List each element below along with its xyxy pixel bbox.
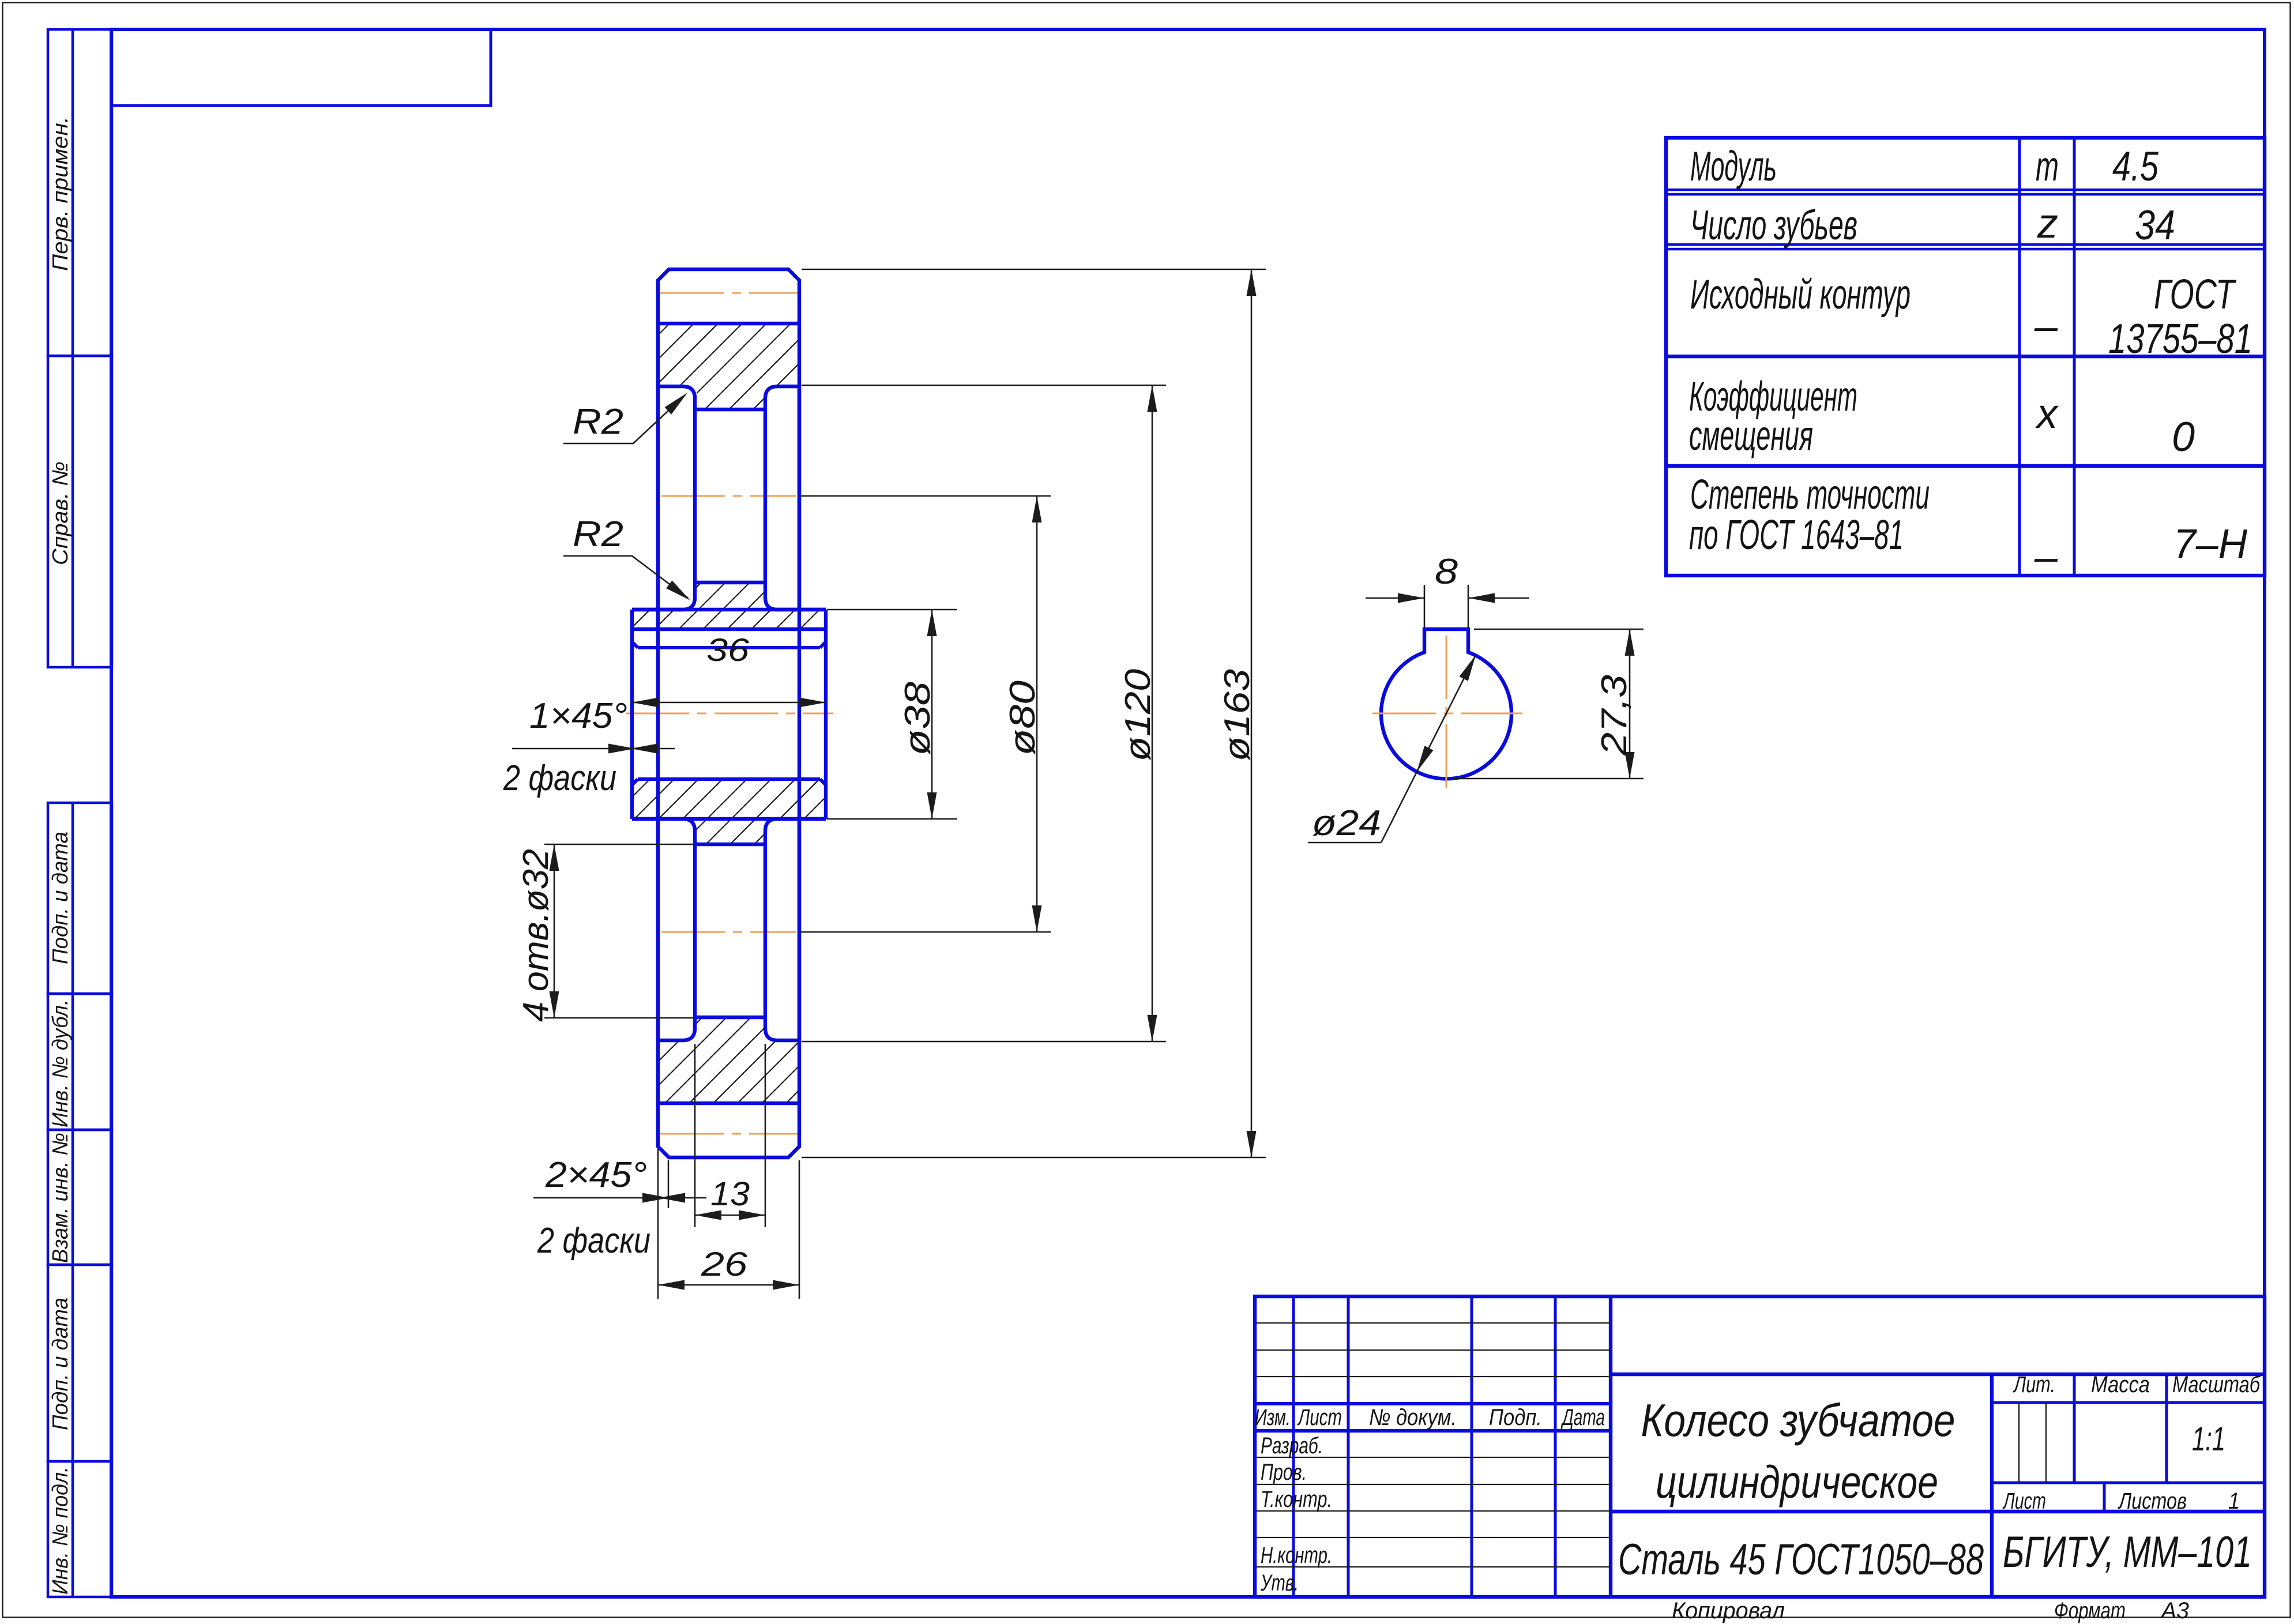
svg-text:26: 26 (701, 1246, 748, 1283)
svg-text:13: 13 (710, 1175, 750, 1213)
svg-text:2×45°: 2×45° (545, 1155, 647, 1195)
svg-text:ø80: ø80 (1003, 681, 1043, 755)
svg-text:Лист: Лист (2002, 1488, 2046, 1514)
svg-text:R2: R2 (573, 402, 623, 442)
svg-text:1×45°: 1×45° (529, 696, 627, 736)
svg-text:7–Н: 7–Н (2173, 521, 2248, 567)
svg-text:Исходный контур: Исходный контур (1690, 272, 1911, 318)
svg-text:ø24: ø24 (1312, 803, 1381, 843)
svg-text:Колесо зубчатое: Колесо зубчатое (1641, 1394, 1955, 1446)
svg-text:Формат: Формат (2054, 1598, 2126, 1623)
svg-text:1:1: 1:1 (2192, 1420, 2225, 1458)
svg-text:–: – (2034, 303, 2058, 349)
svg-text:цилиндрическое: цилиндрическое (1656, 1456, 1938, 1508)
svg-text:8: 8 (1435, 552, 1458, 592)
svg-text:Н.контр.: Н.контр. (1261, 1543, 1332, 1568)
svg-text:смещения: смещения (1689, 413, 1813, 459)
svg-text:2 фаски: 2 фаски (503, 758, 616, 798)
svg-text:–: – (2034, 534, 2058, 580)
svg-text:БГИТУ, ММ–101: БГИТУ, ММ–101 (2003, 1528, 2252, 1577)
svg-text:ø120: ø120 (1118, 669, 1158, 761)
svg-text:Подп.: Подп. (1489, 1405, 1542, 1430)
svg-text:Изм.: Изм. (1255, 1405, 1291, 1430)
svg-text:Инв. № дубл.: Инв. № дубл. (48, 999, 73, 1127)
svg-text:27,3: 27,3 (1594, 675, 1634, 756)
svg-text:R2: R2 (573, 514, 623, 554)
svg-text:по ГОСТ 1643–81: по ГОСТ 1643–81 (1689, 512, 1904, 558)
svg-text:x: x (2035, 391, 2059, 437)
svg-text:А3: А3 (2160, 1598, 2189, 1623)
svg-text:4.5: 4.5 (2112, 144, 2159, 190)
svg-text:Взам. инв. №: Взам. инв. № (48, 1133, 73, 1263)
svg-text:36: 36 (706, 631, 750, 668)
svg-text:z: z (2037, 201, 2058, 247)
svg-text:Разраб.: Разраб. (1261, 1433, 1323, 1458)
svg-text:Масса: Масса (2091, 1372, 2150, 1397)
svg-text:Копировал: Копировал (1672, 1598, 1785, 1623)
svg-text:ø38: ø38 (898, 681, 938, 755)
svg-text:Подп. и дата: Подп. и дата (48, 832, 73, 964)
svg-text:34: 34 (2135, 202, 2175, 249)
svg-text:Пров.: Пров. (1261, 1460, 1307, 1485)
svg-text:m: m (2036, 144, 2059, 190)
svg-text:Число зубьев: Число зубьев (1690, 202, 1857, 249)
svg-text:Листов: Листов (2118, 1488, 2187, 1514)
svg-text:2 фаски: 2 фаски (537, 1221, 650, 1261)
svg-text:Перв. примен.: Перв. примен. (48, 116, 73, 271)
svg-text:13755–81: 13755–81 (2108, 316, 2252, 362)
svg-text:Т.контр.: Т.контр. (1261, 1487, 1332, 1512)
svg-text:Утв.: Утв. (1260, 1570, 1299, 1596)
svg-text:Модуль: Модуль (1690, 144, 1777, 190)
svg-text:ø163: ø163 (1217, 669, 1257, 761)
svg-text:Лист: Лист (1297, 1405, 1342, 1430)
svg-text:Справ. №: Справ. № (48, 461, 73, 565)
svg-text:4 отв.ø32: 4 отв.ø32 (516, 849, 556, 1022)
svg-text:Масштаб: Масштаб (2172, 1372, 2261, 1397)
svg-text:Сталь 45 ГОСТ1050–88: Сталь 45 ГОСТ1050–88 (1618, 1535, 1984, 1584)
svg-text:Степень точности: Степень точности (1690, 472, 1930, 518)
svg-text:Лит.: Лит. (2013, 1372, 2055, 1397)
svg-text:ГОСТ: ГОСТ (2154, 272, 2237, 318)
svg-text:№ докум.: № докум. (1369, 1405, 1457, 1430)
svg-text:Подп. и дата: Подп. и дата (48, 1298, 73, 1430)
svg-text:1: 1 (2228, 1488, 2240, 1514)
svg-text:0: 0 (2172, 414, 2195, 460)
svg-text:Дата: Дата (1560, 1405, 1605, 1430)
svg-text:Инв. № подл.: Инв. № подл. (48, 1467, 73, 1595)
